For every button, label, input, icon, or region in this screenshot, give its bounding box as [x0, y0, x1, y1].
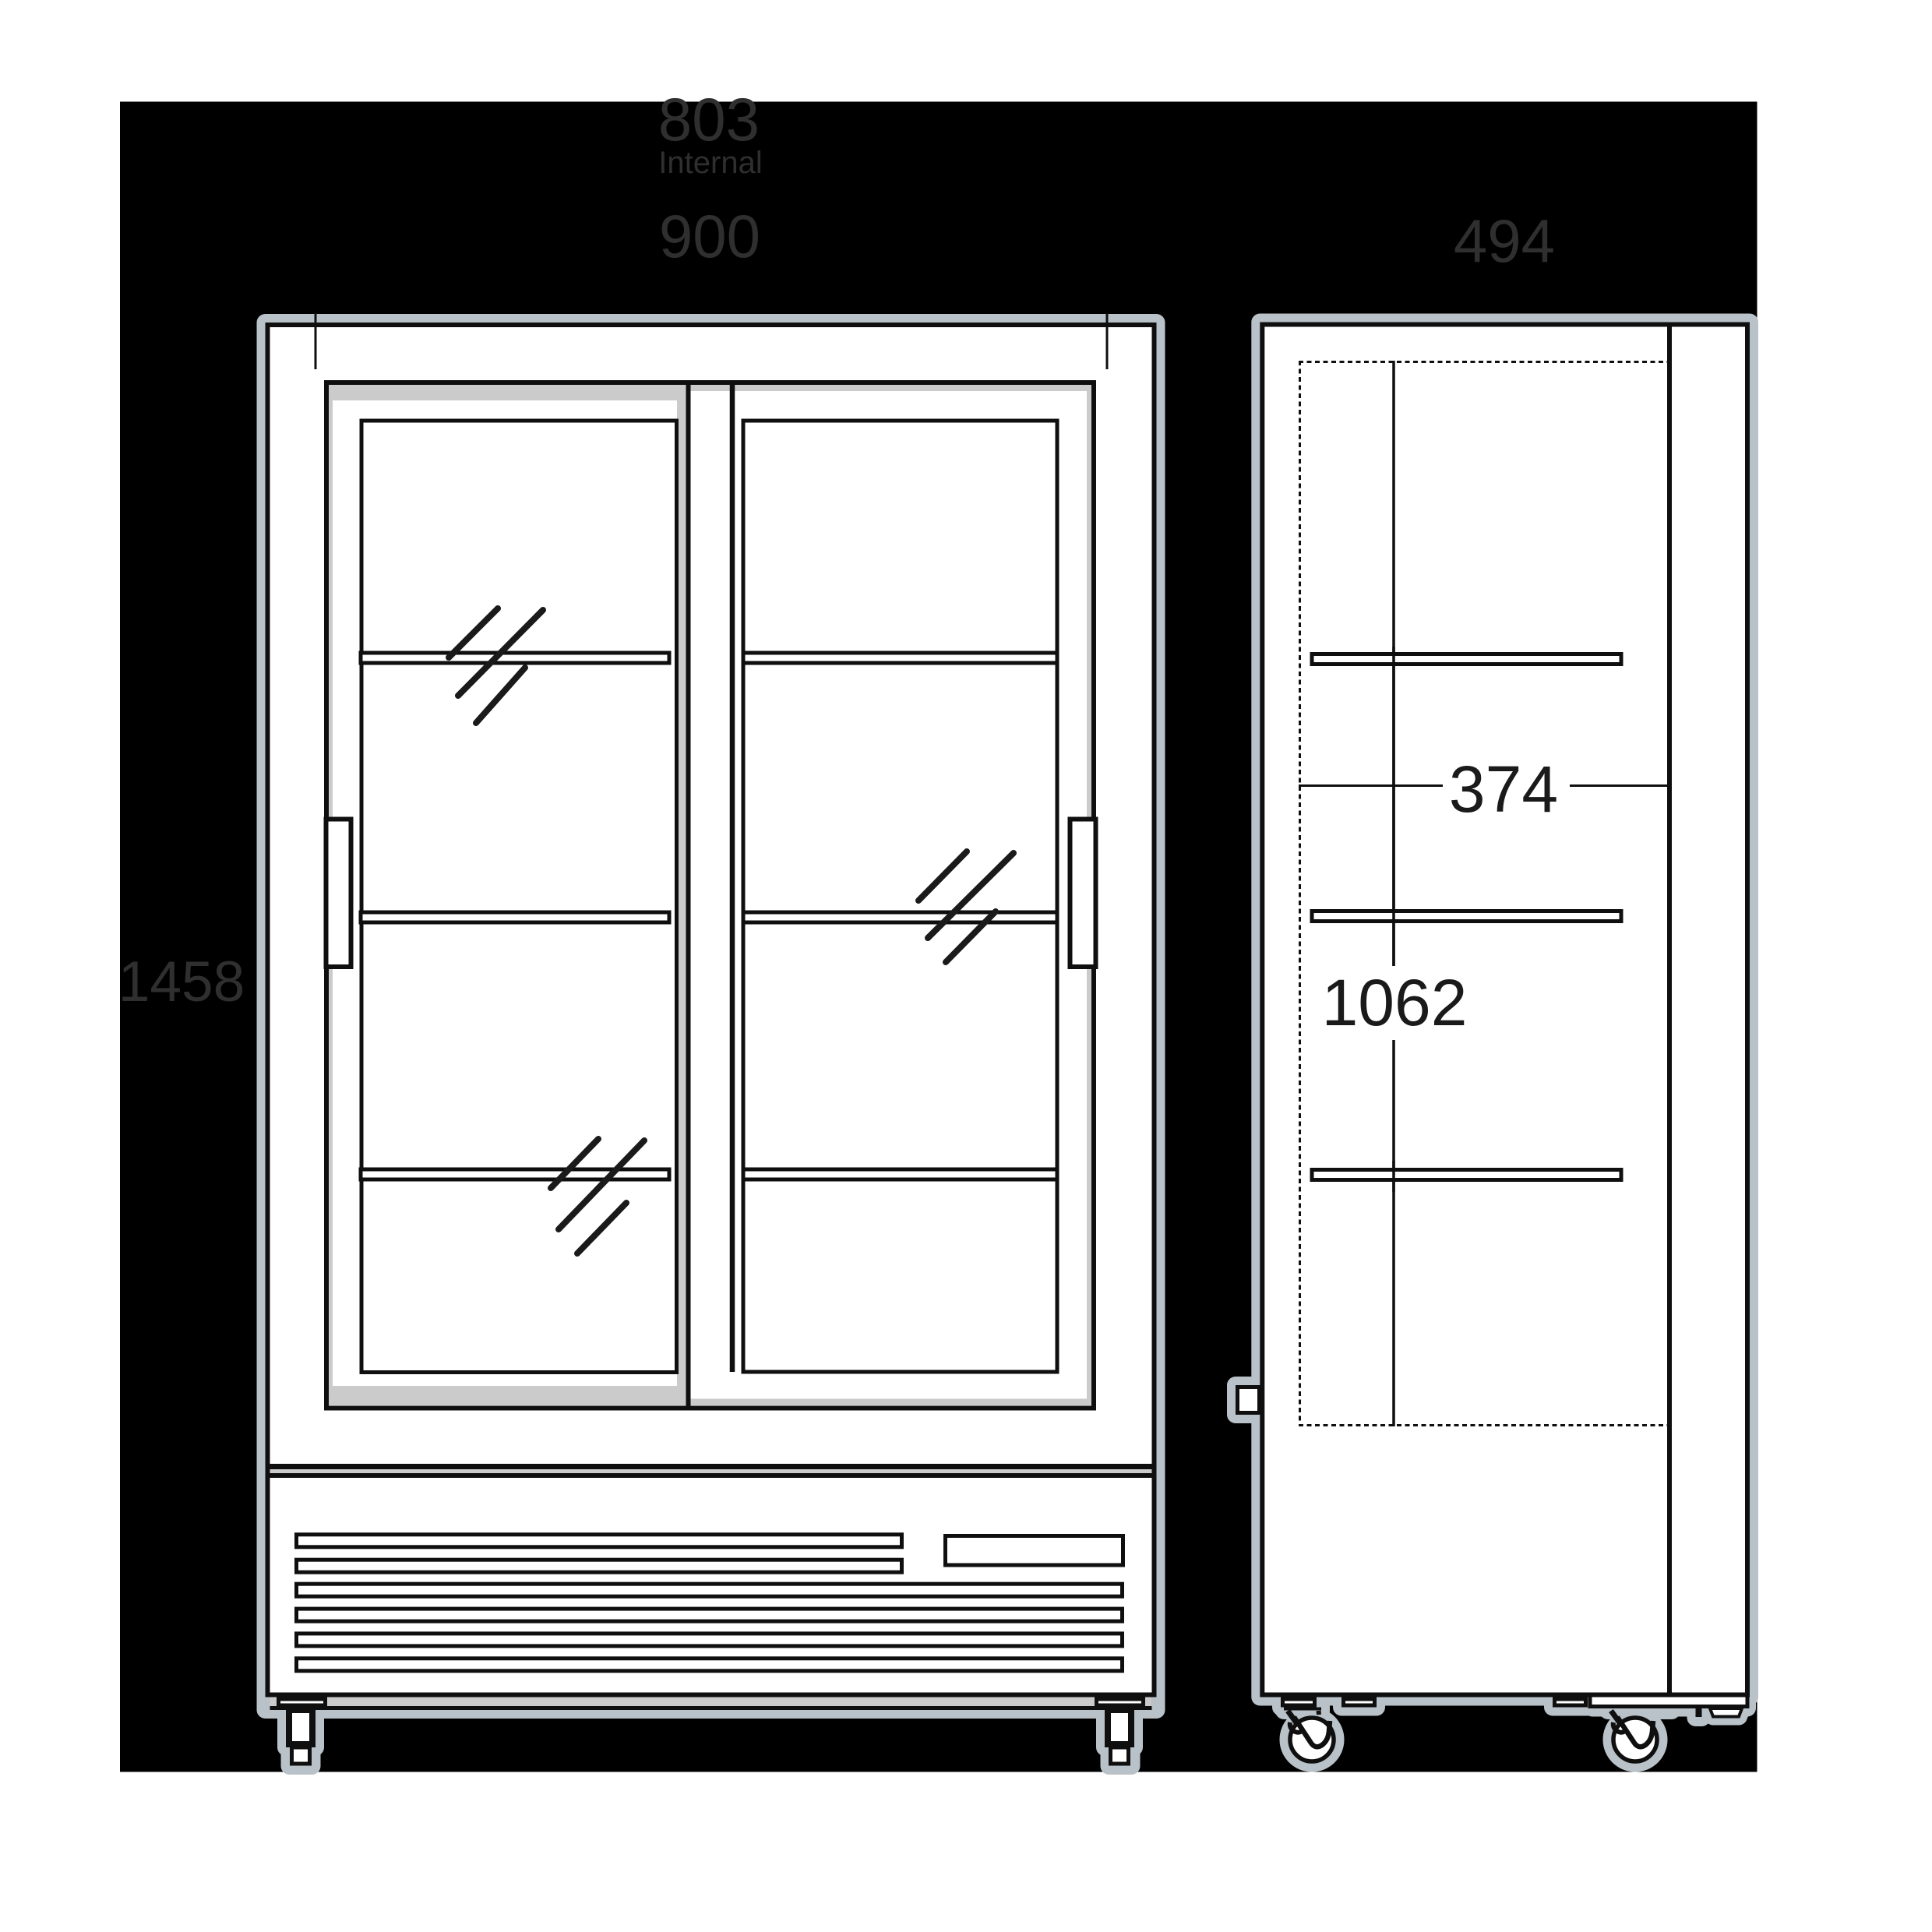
svg-text:1062: 1062 — [1322, 966, 1468, 1039]
svg-text:803: 803 — [658, 85, 760, 153]
svg-text:Internal: Internal — [658, 146, 762, 180]
svg-text:1458: 1458 — [118, 950, 245, 1014]
svg-text:900: 900 — [659, 202, 760, 270]
svg-text:374: 374 — [1449, 753, 1558, 826]
svg-text:494: 494 — [1454, 206, 1555, 275]
